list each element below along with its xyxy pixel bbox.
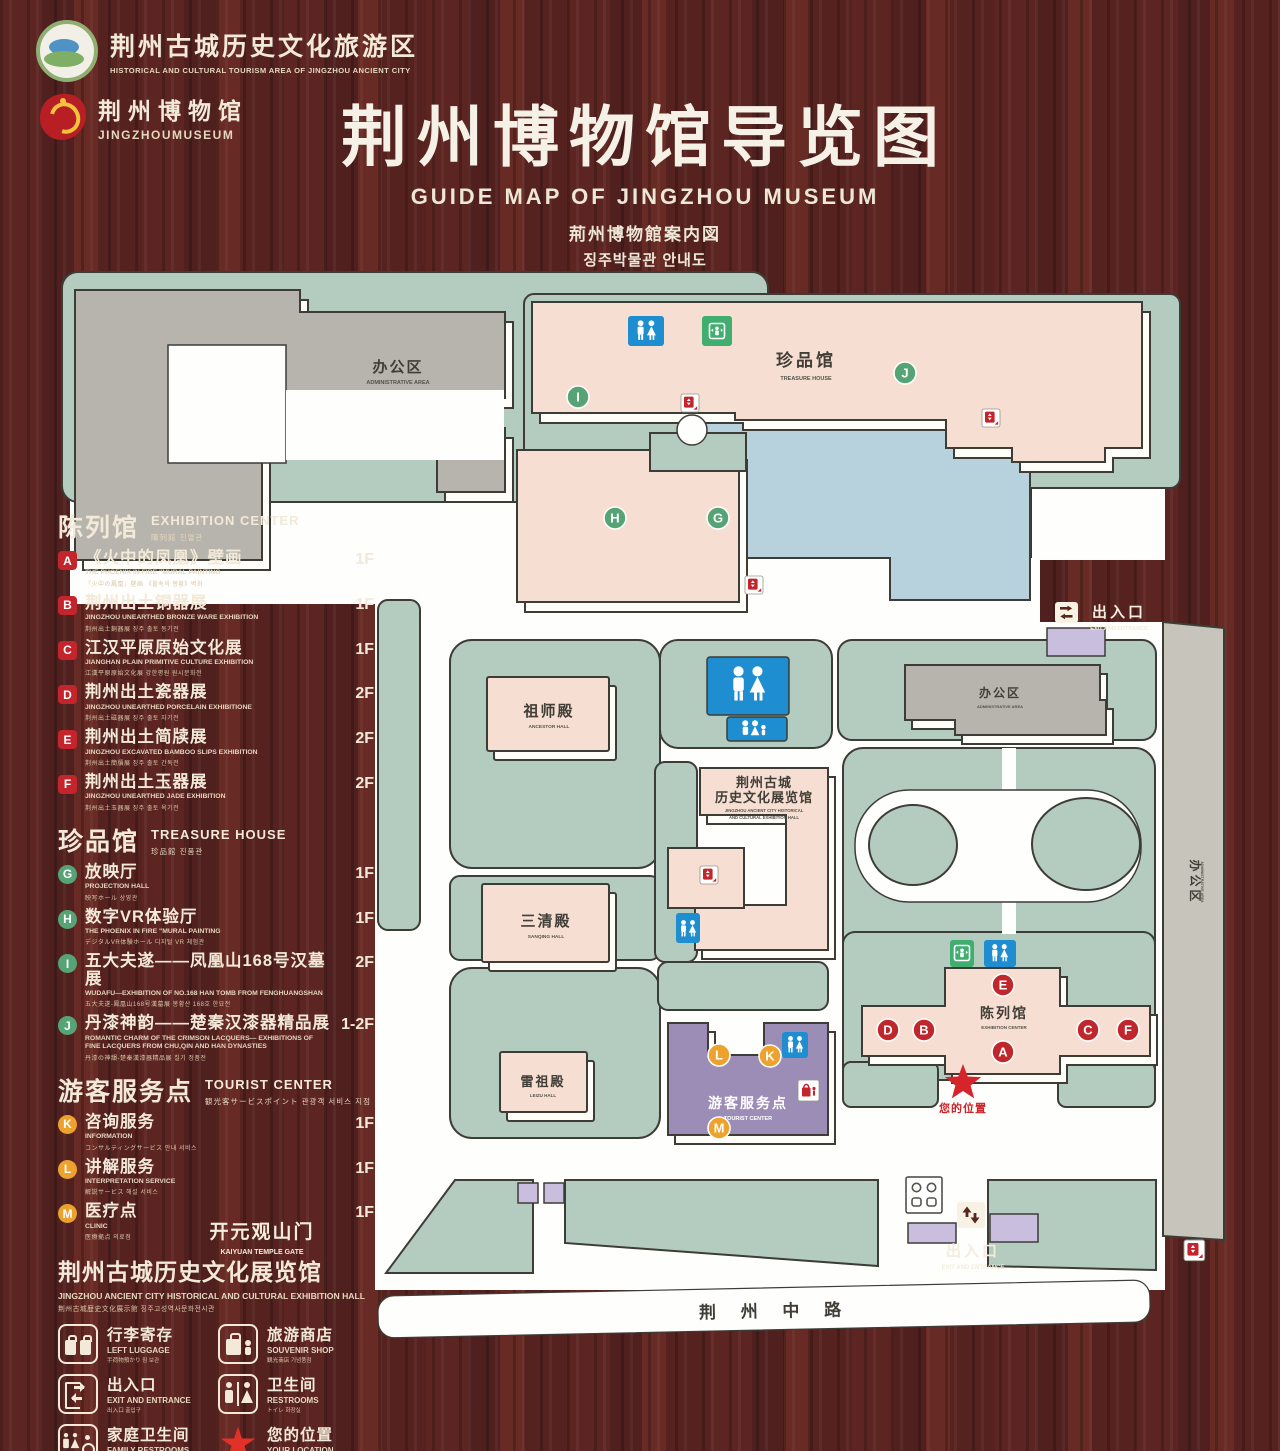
- exhibition-hall-label-2: 历史文化展览馆: [715, 790, 813, 805]
- hall-heading-sub: 荆州古城歴史文化展示館 징주고성역사문화전시관: [58, 1303, 374, 1313]
- gate-building: [908, 1223, 956, 1243]
- exhibition-center-label: 陈列馆: [980, 1005, 1028, 1021]
- item-e-sub: 荆州出土簡牘展 징주 출토 간독전: [85, 758, 330, 767]
- item-f-sub: 荆州出土玉器展 징주 출토 옥기전: [85, 803, 330, 812]
- legend-item-k: K 咨询服务INFORMATIONコンサルティングサービス 안내 서비스 1F: [58, 1114, 374, 1152]
- item-h-en: THE PHOENIX IN FIRE "MURAL PAINTING: [85, 928, 330, 936]
- item-l-sub: 解説サービス 해설 서비스: [85, 1187, 330, 1196]
- svg-text:I: I: [576, 390, 580, 405]
- svg-text:H: H: [610, 511, 619, 526]
- elevator-icon: [700, 866, 718, 884]
- treasure-label: 珍品馆: [776, 350, 836, 370]
- badge-g: G: [58, 865, 77, 884]
- item-g-sub: 映写ホール 상영관: [85, 893, 330, 902]
- exit-top-label-en: EXIT AND ENTRANCE: [1090, 626, 1148, 632]
- souvenir-shop-icon: [218, 1324, 258, 1364]
- item-d-zh: 荆州出土瓷器展: [85, 684, 330, 701]
- legend-left-luggage: 行李寄存LEFT LUGGAGE手荷物預かり 짐 보관: [58, 1323, 218, 1364]
- admin-top-label: 办公区: [372, 358, 423, 376]
- admin-mid-label: 办公区: [979, 685, 1021, 700]
- legend-exit-entrance: 出入口EXIT AND ENTRANCE出入口 출입구: [58, 1373, 218, 1414]
- souvenir-shop-sub: 観光商店 기념품점: [267, 1356, 334, 1364]
- legend-item-l: L 讲解服务INTERPRETATION SERVICE解説サービス 해설 서비…: [58, 1159, 374, 1197]
- legend-item-c: C 江汉平原原始文化展JIANGHAN PLAIN PRIMITIVE CULT…: [58, 640, 374, 678]
- item-a-en: THE PHOENIX IN FIRE "MURAL PAINTING: [85, 569, 330, 577]
- svg-text:K: K: [765, 1049, 775, 1064]
- gate-building: [544, 1183, 564, 1203]
- item-l-floor: 1F: [338, 1160, 374, 1178]
- exit-entrance-icon: [1055, 602, 1078, 623]
- badge-j: J: [58, 1016, 77, 1035]
- restrooms-icon: [676, 913, 700, 943]
- badge-d: D: [58, 685, 77, 704]
- gate-building: [1047, 628, 1105, 656]
- page-title: 荆州博物馆导览图: [250, 100, 1040, 176]
- exit-entrance-sub: 出入口 출입구: [107, 1406, 191, 1414]
- badge-h: H: [58, 910, 77, 929]
- museum-name: 荆州博物馆: [98, 92, 248, 126]
- building-ancestor-hall: 祖师殿 ANCESTOR HALL: [487, 677, 616, 760]
- item-d-floor: 2F: [338, 685, 374, 703]
- exit-entrance-icon: [957, 1202, 985, 1228]
- hall-heading-zh: 荆州古城历史文化展览馆: [58, 1253, 374, 1287]
- legend-item-b: B 荆州出土铜器展JINGZHOU UNEARTHED BRONZE WARE …: [58, 595, 374, 633]
- tourism-area-emblem-icon: [36, 20, 98, 82]
- page-title-kr: 징주박물관 안내도: [250, 249, 1040, 270]
- marker-D: D: [877, 1019, 899, 1041]
- item-c-sub: 江漢平原原始文化展 강한평원 원시문화전: [85, 668, 330, 677]
- item-c-en: JIANGHAN PLAIN PRIMITIVE CULTURE EXHIBIT…: [85, 659, 330, 667]
- exit-entrance-en: EXIT AND ENTRANCE: [107, 1396, 191, 1405]
- restrooms-icon: [628, 316, 664, 346]
- your-location-zh: 您的位置: [267, 1423, 334, 1445]
- admin-mid-label-en: ADMINISTRATIVE AREA: [977, 704, 1023, 709]
- building-leizu-hall: 雷祖殿 LEIZU HALL: [500, 1052, 594, 1121]
- item-c-floor: 1F: [338, 641, 374, 659]
- svg-text:A: A: [998, 1045, 1008, 1060]
- restrooms-icon: [218, 1374, 258, 1414]
- ancestor-label-en: ANCESTOR HALL: [529, 724, 570, 730]
- svg-text:B: B: [919, 1023, 928, 1038]
- item-e-floor: 2F: [338, 730, 374, 748]
- legend-item-a: A 《火中的凤凰》壁画THE PHOENIX IN FIRE "MURAL PA…: [58, 550, 374, 588]
- item-m-floor: 1F: [338, 1204, 374, 1222]
- item-g-en: PROJECTION HALL: [85, 883, 330, 891]
- section-exhibition-center-zh: 陈列馆: [58, 508, 139, 544]
- badge-i: I: [58, 954, 77, 973]
- svg-text:F: F: [1124, 1023, 1132, 1038]
- leizu-label-en: LEIZU HALL: [530, 1093, 556, 1098]
- marker-B: B: [913, 1019, 935, 1041]
- item-k-sub: コンサルティングサービス 안내 서비스: [85, 1143, 330, 1152]
- item-h-zh: 数字VR体验厅: [85, 909, 330, 926]
- badge-c: C: [58, 641, 77, 660]
- legend-item-i: I 五大夫遂——凤凰山168号汉墓展WUDAFU—EXHIBITION OF N…: [58, 953, 374, 1008]
- item-h-floor: 1F: [338, 910, 374, 928]
- marker-C: C: [1077, 1019, 1099, 1041]
- item-h-sub: デジタルVR体験ホール 디지털 VR 체험관: [85, 937, 330, 946]
- your-location-icon: [218, 1424, 258, 1451]
- treasure-label-en: TREASURE HOUSE: [780, 376, 832, 382]
- item-i-zh: 五大夫遂——凤凰山168号汉墓展: [85, 953, 330, 988]
- exhibition-hall-label-en1: JINGZHOU ANCIENT CITY HISTORICAL: [725, 808, 804, 813]
- legend-your-location: 您的位置YOUR LOCATIONあなたの位置 당신의 위치: [218, 1423, 374, 1451]
- item-f-en: JINGZHOU UNEARTHED JADE EXHIBITION: [85, 793, 330, 801]
- section-tourist-center-zh: 游客服务点: [58, 1072, 193, 1108]
- museum-name-en: JINGZHOUMUSEUM: [98, 128, 248, 142]
- section-exhibition-center-sub: 陳列館 진열관: [151, 532, 299, 543]
- item-l-en: INTERPRETATION SERVICE: [85, 1178, 330, 1186]
- restrooms-icon: [984, 940, 1016, 967]
- section-treasure-house-sub: 珍品館 진품관: [151, 846, 286, 857]
- legend-item-e: E 荆州出土简牍展JINGZHOU EXCAVATED BAMBOO SLIPS…: [58, 729, 374, 767]
- svg-text:L: L: [715, 1048, 723, 1063]
- exhibition-hall-label-en2: AND CULTURAL EXHIBITION HALL: [729, 815, 800, 820]
- item-j-floor: 1-2F: [338, 1016, 374, 1034]
- legend-restrooms: 卫生间RESTROOMSトイレ 화장실: [218, 1373, 374, 1414]
- page-title-en: GUIDE MAP OF JINGZHOU MUSEUM: [250, 184, 1040, 210]
- badge-a: A: [58, 551, 77, 570]
- restrooms-icon: [782, 1032, 808, 1058]
- exit-entrance-zh: 出入口: [107, 1373, 191, 1395]
- item-d-en: JINGZHOU UNEARTHED PORCELAIN EXHIBITIONE: [85, 704, 330, 712]
- elevator-icon: [745, 576, 763, 594]
- exhibition-hall-label-1: 荆州古城: [736, 775, 792, 790]
- your-location-label: 您的位置: [939, 1101, 987, 1115]
- badge-e: E: [58, 730, 77, 749]
- building-admin-strip-right: 办公区 ADMINISTRATIVE AREA: [1163, 622, 1224, 1261]
- marker-H: H: [604, 507, 626, 529]
- item-i-floor: 2F: [338, 954, 374, 972]
- item-a-zh: 《火中的凤凰》壁画: [85, 550, 330, 567]
- tourist-center-label: 游客服务点: [708, 1095, 788, 1111]
- marker-M: M: [708, 1117, 730, 1139]
- family-restrooms-zh: 家庭卫生间: [107, 1423, 190, 1445]
- left-luggage-en: LEFT LUGGAGE: [107, 1346, 173, 1355]
- exhibition-center-label-en: EXHIBITION CENTER: [981, 1025, 1027, 1030]
- bad­ge-f: F: [58, 775, 77, 794]
- item-k-floor: 1F: [338, 1115, 374, 1133]
- item-c-zh: 江汉平原原始文化展: [85, 640, 330, 657]
- marker-L: L: [708, 1044, 730, 1066]
- badge-k: K: [58, 1115, 77, 1134]
- item-d-sub: 荆州出土磁器展 징주 출토 자기전: [85, 713, 330, 722]
- legend-family-restrooms: 家庭卫生间FAMILY RESTROOMS家族用トイレ 가족 화장실: [58, 1423, 218, 1451]
- marker-I: I: [567, 386, 589, 408]
- section-tourist-center-en: TOURIST CENTER: [205, 1077, 333, 1092]
- item-b-sub: 荆州出土銅器展 징주 출토 동기전: [85, 624, 330, 633]
- gate-building: [990, 1214, 1038, 1242]
- marker-F: F: [1117, 1019, 1139, 1041]
- restrooms-zh: 卫生间: [267, 1373, 319, 1395]
- exit-bottom-label-en: EXIT AND ENTRANCE: [942, 1265, 1005, 1271]
- ancestor-label: 祖师殿: [522, 702, 574, 720]
- marker-E: E: [992, 974, 1014, 996]
- legend-item-f: F 荆州出土玉器展JINGZHOU UNEARTHED JADE EXHIBIT…: [58, 774, 374, 812]
- page-title-jp: 荊州博物館案内図: [250, 220, 1040, 245]
- item-m-zh: 医疗点: [85, 1203, 330, 1220]
- family-restrooms-icon: [58, 1424, 98, 1451]
- restrooms-sub: トイレ 화장실: [267, 1406, 319, 1414]
- item-i-en: WUDAFU—EXHIBITION OF NO.168 HAN TOMB FRO…: [85, 990, 330, 998]
- tourism-area-name-en: HISTORICAL AND CULTURAL TOURISM AREA OF …: [110, 66, 418, 75]
- item-m-sub: 医療拠点 의료점: [85, 1232, 330, 1241]
- section-exhibition-center: 陈列馆 EXHIBITION CENTER 陳列館 진열관: [58, 508, 374, 544]
- item-b-en: JINGZHOU UNEARTHED BRONZE WARE EXHIBITIO…: [85, 614, 330, 622]
- item-k-en: INFORMATION: [85, 1133, 330, 1141]
- item-k-zh: 咨询服务: [85, 1114, 330, 1131]
- item-l-zh: 讲解服务: [85, 1159, 330, 1176]
- tourism-area-logo: 荆州古城历史文化旅游区 HISTORICAL AND CULTURAL TOUR…: [36, 20, 396, 82]
- section-tourist-center-sub: 観光客サービスポイント 관광객 서비스 지점: [205, 1096, 371, 1107]
- sanqing-label: 三清殿: [520, 912, 571, 930]
- item-e-en: JINGZHOU EXCAVATED BAMBOO SLIPS EXHIBITI…: [85, 749, 330, 757]
- left-luggage-zh: 行李寄存: [107, 1323, 173, 1345]
- svg-text:J: J: [901, 366, 908, 381]
- item-a-sub: 「火中の鳳凰」壁画 《불속의 봉황》벽화: [85, 579, 330, 588]
- item-b-zh: 荆州出土铜器展: [85, 595, 330, 612]
- item-a-floor: 1F: [338, 551, 374, 569]
- gate-building: [518, 1183, 538, 1203]
- item-i-sub: 五大夫遂-鳳凰山168号漢墓展 봉황산 168호 한묘전: [85, 999, 330, 1008]
- legend-item-g: G 放映厅PROJECTION HALL映写ホール 상영관 1F: [58, 864, 374, 902]
- souvenir-shop-en: SOUVENIR SHOP: [267, 1346, 334, 1355]
- marker-J: J: [894, 362, 916, 384]
- badge-l: L: [58, 1160, 77, 1179]
- your-location-en: YOUR LOCATION: [267, 1446, 334, 1451]
- svg-text:E: E: [999, 978, 1008, 993]
- legend-item-j: J 丹漆神韵——楚秦汉漆器精品展ROMANTIC CHARM OF THE CR…: [58, 1015, 374, 1061]
- exit-entrance-icon: [58, 1374, 98, 1414]
- page-title-block: 荆州博物馆导览图 GUIDE MAP OF JINGZHOU MUSEUM 荊州…: [250, 100, 1040, 270]
- section-tourist-center: 游客服务点 TOURIST CENTER 観光客サービスポイント 관광객 서비스…: [58, 1072, 374, 1108]
- souvenir-shop-zh: 旅游商店: [267, 1323, 334, 1345]
- legend-souvenir-shop: 旅游商店SOUVENIR SHOP観光商店 기념품점: [218, 1323, 374, 1364]
- exit-top-label: 出入口: [1092, 603, 1146, 621]
- icon-legend: 行李寄存LEFT LUGGAGE手荷物預かり 짐 보관 旅游商店SOUVENIR…: [58, 1323, 374, 1451]
- tourism-area-name: 荆州古城历史文化旅游区: [110, 27, 418, 63]
- admin-strip-label-en: ADMINISTRATIVE AREA: [1200, 861, 1204, 903]
- leizu-label: 雷祖殿: [520, 1074, 565, 1089]
- legend-item-h: H 数字VR体验厅THE PHOENIX IN FIRE "MURAL PAIN…: [58, 909, 374, 947]
- marker-A: A: [992, 1041, 1014, 1063]
- tourist-center-label-en: TOURIST CENTER: [724, 1116, 772, 1122]
- elevator-icon: [982, 409, 1000, 427]
- phoenix-logo-icon: [40, 94, 86, 140]
- building-sanqing-hall: 三清殿 SANQING HALL: [482, 884, 616, 971]
- item-g-zh: 放映厅: [85, 864, 330, 881]
- legend-item-d: D 荆州出土瓷器展JINGZHOU UNEARTHED PORCELAIN EX…: [58, 684, 374, 722]
- guide-map-board: 办公区 ADMINISTRATIVE AREA 办公区 ADMINISTRATI…: [0, 0, 1280, 1451]
- section-treasure-house: 珍品馆 TREASURE HOUSE 珍品館 진품관: [58, 822, 374, 858]
- svg-text:D: D: [883, 1023, 892, 1038]
- legend-item-m: M 医疗点CLINIC医療拠点 의료점 1F: [58, 1203, 374, 1241]
- badge-m: M: [58, 1204, 77, 1223]
- exit-bottom-label: 出入口: [946, 1242, 1000, 1260]
- svg-text:M: M: [714, 1121, 725, 1136]
- item-g-floor: 1F: [338, 865, 374, 883]
- left-luggage-icon: [58, 1324, 98, 1364]
- item-j-zh: 丹漆神韵——楚秦汉漆器精品展: [85, 1015, 330, 1032]
- elevator-icon: [1184, 1240, 1205, 1261]
- family-restrooms-en: FAMILY RESTROOMS: [107, 1446, 190, 1451]
- badge-b: B: [58, 596, 77, 615]
- item-f-floor: 2F: [338, 775, 374, 793]
- admin-top-label-en: ADMINISTRATIVE AREA: [366, 380, 429, 386]
- hall-heading: 荆州古城历史文化展览馆 JINGZHOU ANCIENT CITY HISTOR…: [58, 1253, 374, 1313]
- item-b-floor: 1F: [338, 596, 374, 614]
- item-e-zh: 荆州出土简牍展: [85, 729, 330, 746]
- section-exhibition-center-en: EXHIBITION CENTER: [151, 513, 299, 528]
- road-label: 荆 州 中 路: [699, 1299, 852, 1322]
- svg-text:C: C: [1083, 1023, 1093, 1038]
- left-luggage-sub: 手荷物預かり 짐 보관: [107, 1356, 173, 1364]
- section-treasure-house-zh: 珍品馆: [58, 822, 139, 858]
- svg-text:G: G: [713, 511, 723, 526]
- item-j-en: ROMANTIC CHARM OF THE CRIMSON LACQUERS— …: [85, 1035, 330, 1052]
- elevator-icon: [681, 394, 699, 412]
- sanqing-label-en: SANQING HALL: [528, 934, 565, 940]
- left-luggage-icon: [798, 1080, 819, 1101]
- item-m-en: CLINIC: [85, 1223, 330, 1231]
- legend-sidebar: 陈列馆 EXHIBITION CENTER 陳列館 진열관 A 《火中的凤凰》壁…: [58, 498, 374, 1451]
- restrooms-en: RESTROOMS: [267, 1396, 319, 1405]
- hall-heading-en: JINGZHOU ANCIENT CITY HISTORICAL AND CUL…: [58, 1291, 374, 1301]
- section-treasure-house-en: TREASURE HOUSE: [151, 827, 286, 842]
- marker-K: K: [759, 1045, 781, 1067]
- restrooms-icon: [906, 1177, 942, 1213]
- item-f-zh: 荆州出土玉器展: [85, 774, 330, 791]
- item-j-sub: 丹漆の神韻-楚秦漢漆器精品展 칠기 정품전: [85, 1053, 330, 1062]
- marker-G: G: [707, 507, 729, 529]
